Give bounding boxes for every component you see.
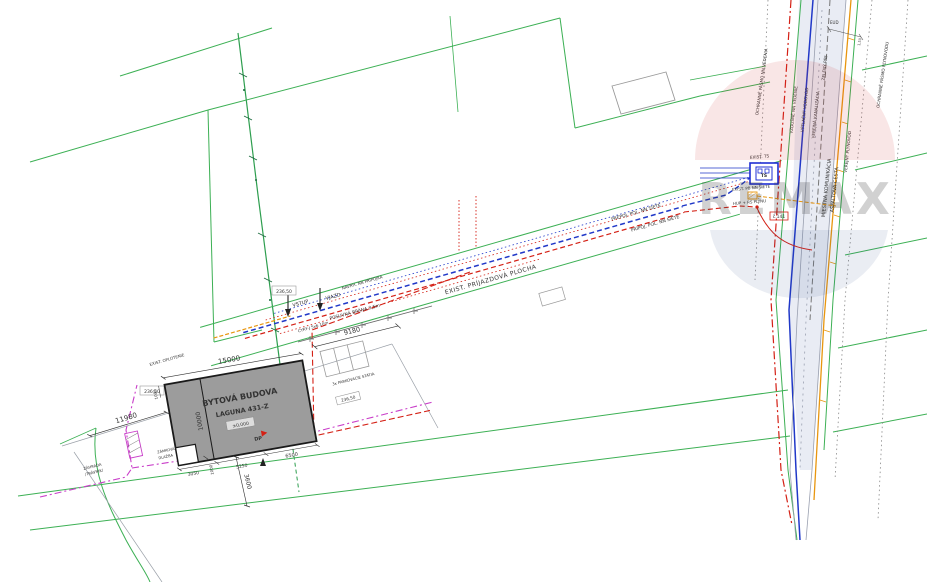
plot-dim: 11980 (85, 402, 169, 438)
building-notch (176, 444, 199, 465)
site-plan-canvas: PREPOJ. POL. NN SIETE PRÍPOJ. POL. NN SI… (0, 0, 927, 582)
dim-top: 15000 (218, 354, 241, 366)
service-stubs (459, 196, 476, 252)
parking-area: 9180 3x PARKOVACIE STÁTIA 236,50 (310, 316, 415, 408)
elevation-1: 236,50 (276, 289, 292, 295)
plot-lines (62, 72, 675, 582)
watermark: REMAX (695, 60, 895, 298)
dim-bottom-d: 6500 (285, 452, 299, 460)
fence-shed (125, 431, 143, 458)
road-tick-dim: 1,50 (857, 38, 862, 46)
garden-label: ZÁHRADA /TRÁVNIK/ (83, 461, 105, 476)
vjazd-label: VJAZD (325, 292, 342, 302)
road-top-dim: EUD (830, 20, 839, 25)
dim-bottom-a: 3050 (187, 470, 199, 478)
zone-right-label: OCHRANNÉ PÁSMO PLYNOVODU (875, 41, 889, 108)
paving-label: ZÁMKOVÁ DLAŽBA (157, 446, 177, 461)
corridor-surface-label: EXIST. PRÍJAZDOVÁ PLOCHA (444, 263, 538, 296)
watermark-text: REMAX (698, 174, 894, 225)
parking-label: 3x PARKOVACIE STÁTIA (332, 371, 376, 386)
small-shaft-outline (539, 287, 566, 306)
existing-building-outline (612, 72, 675, 114)
dim-bottom-b: 1000 (208, 464, 215, 475)
building-group: BYTOVÁ BUDOVA LAGUNA 431-Z ±0,000 15000 … (149, 343, 321, 482)
paving-label-1: ZÁMKOVÁ (157, 446, 176, 455)
elevation-box-1: 236,50 (272, 286, 296, 295)
site-plan-svg: PREPOJ. POL. NN SIETE PRÍPOJ. POL. NN SI… (0, 0, 927, 582)
fence-label: EXIST. OPLOTENIE (149, 352, 185, 367)
dim-below: 3600 (242, 473, 252, 490)
cable-blue-label: NAVRH. NN PRÍPOJKA (341, 274, 383, 290)
corridor-red-label: PRÍPOJ. POL. NN SIETE (630, 213, 680, 234)
